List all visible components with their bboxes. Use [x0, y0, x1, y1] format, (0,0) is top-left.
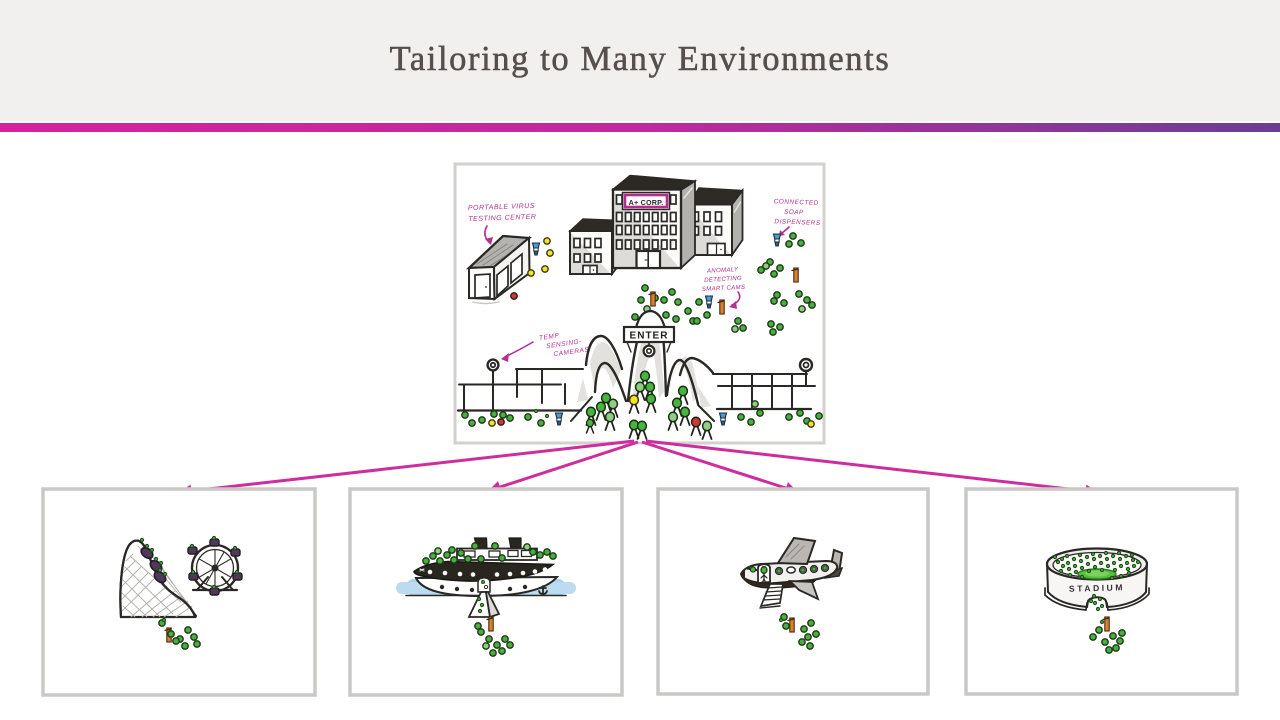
svg-text:ENTER: ENTER [630, 331, 669, 342]
svg-text:A+ CORP.: A+ CORP. [629, 198, 664, 207]
svg-text:STADIUM: STADIUM [1069, 582, 1125, 593]
svg-text:SOAP: SOAP [784, 209, 804, 217]
